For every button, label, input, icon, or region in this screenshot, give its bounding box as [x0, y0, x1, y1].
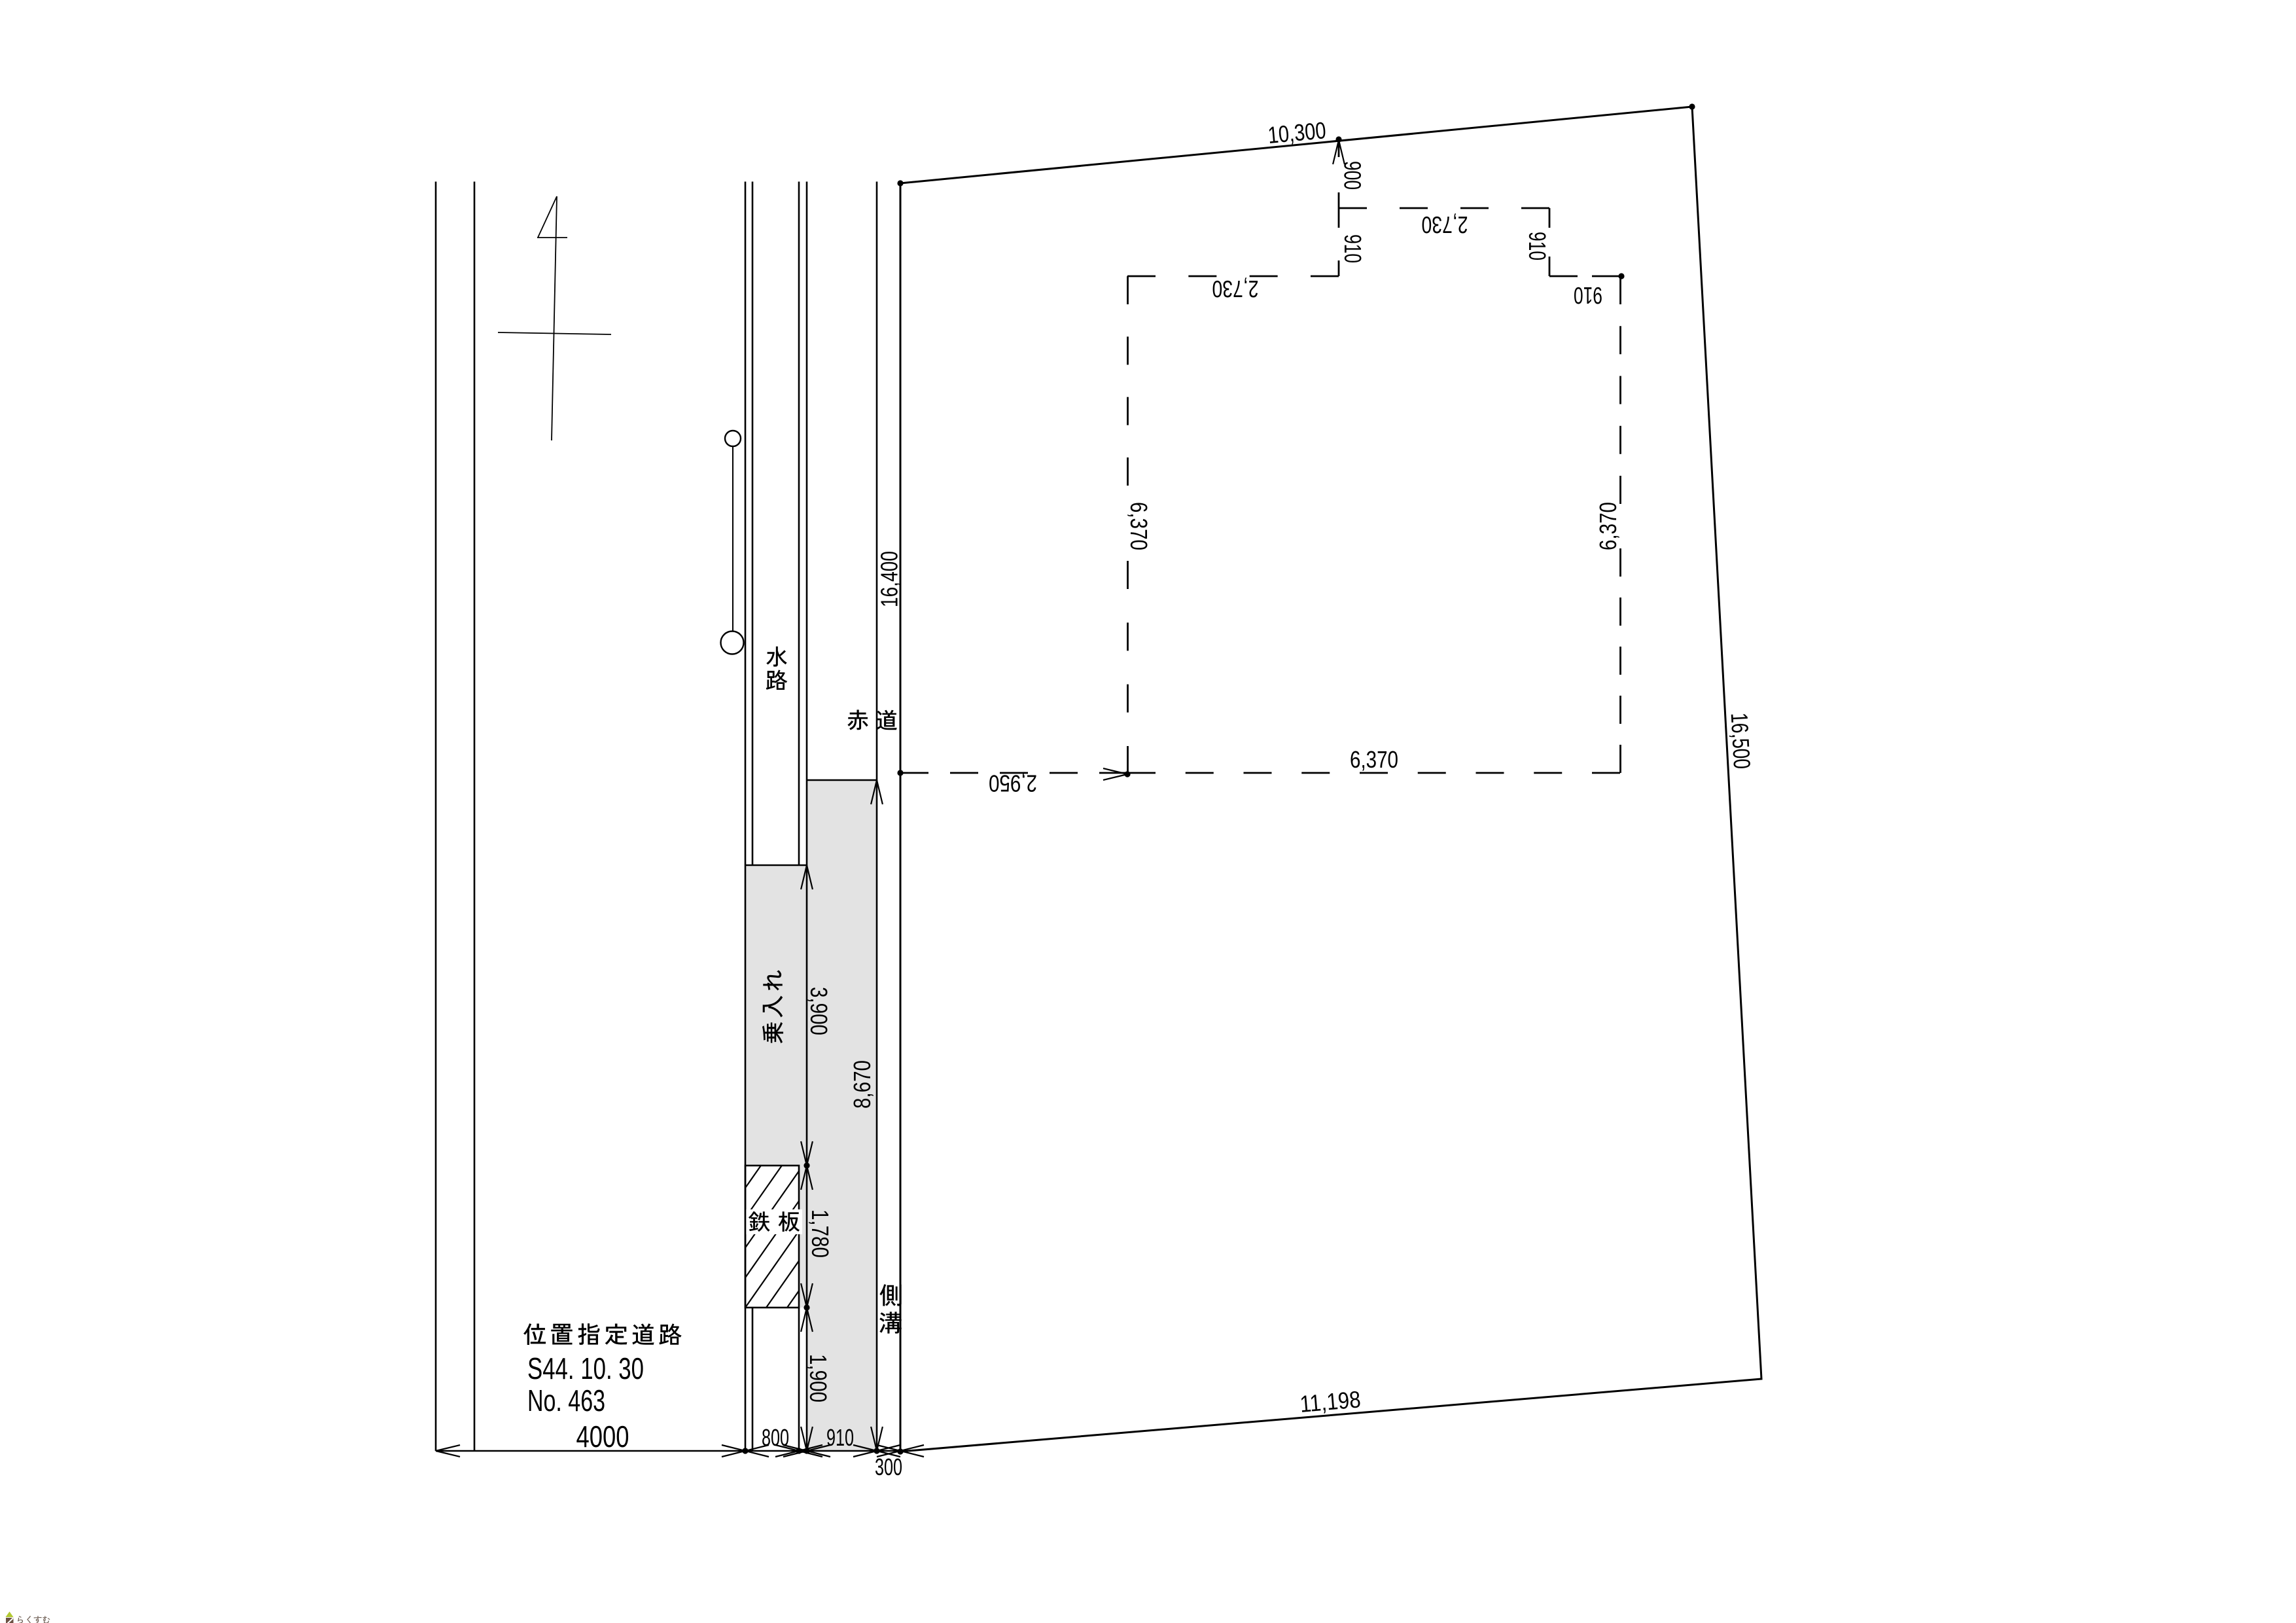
- svg-text:6,370: 6,370: [1125, 502, 1152, 550]
- svg-text:2,730: 2,730: [1212, 276, 1259, 302]
- svg-text:11,198: 11,198: [1299, 1385, 1362, 1418]
- svg-text:No. 463: No. 463: [527, 1383, 605, 1418]
- svg-text:2,950: 2,950: [989, 770, 1037, 796]
- svg-text:8,670: 8,670: [849, 1060, 875, 1109]
- svg-text:6,370: 6,370: [1595, 502, 1621, 550]
- svg-text:3,900: 3,900: [805, 987, 832, 1035]
- svg-text:910: 910: [1524, 232, 1551, 260]
- svg-text:1,780: 1,780: [807, 1209, 834, 1258]
- svg-text:910: 910: [826, 1424, 854, 1451]
- svg-text:900: 900: [1339, 161, 1366, 190]
- svg-text:4000: 4000: [576, 1419, 629, 1454]
- svg-text:16,500: 16,500: [1726, 712, 1756, 770]
- svg-text:910: 910: [1339, 234, 1366, 263]
- svg-text:16,400: 16,400: [876, 551, 903, 607]
- svg-text:S44. 10. 30: S44. 10. 30: [527, 1351, 644, 1385]
- svg-text:10,300: 10,300: [1267, 116, 1327, 149]
- svg-text:300: 300: [875, 1454, 902, 1480]
- svg-text:2,730: 2,730: [1422, 211, 1468, 238]
- svg-text:800: 800: [762, 1424, 789, 1451]
- svg-text:1,900: 1,900: [805, 1354, 832, 1402]
- svg-text:6,370: 6,370: [1350, 746, 1398, 773]
- svg-text:910: 910: [1574, 282, 1602, 309]
